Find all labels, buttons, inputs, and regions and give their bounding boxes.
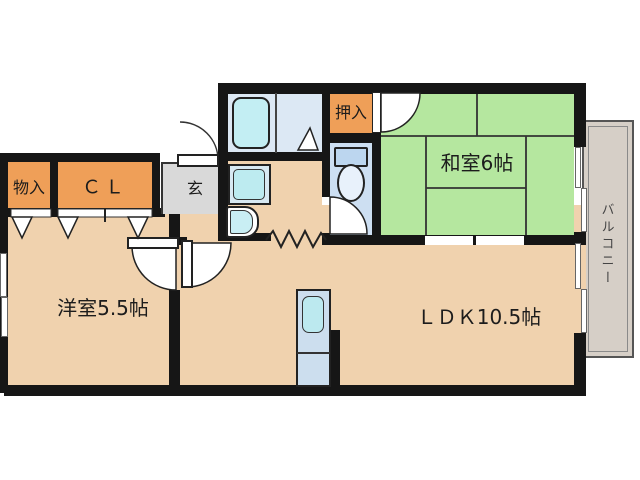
hall-door-arc [187, 243, 231, 287]
storage-fold-door-mark [12, 217, 32, 238]
bathroom-folding-door-mark [298, 128, 318, 150]
futon-closet-door-arc [381, 93, 420, 132]
futon-closet-label: 押入 [335, 105, 367, 121]
western-room-door-leaf [128, 238, 178, 248]
closet-fold-door-mark-1 [58, 217, 78, 238]
balcony-label: バルコニー [600, 203, 613, 288]
storage-label: 物入 [13, 180, 45, 196]
western-room-door-arc [132, 246, 176, 290]
floor-plan: 物入 ＣＬ 玄 押入 和室6帖 洋室5.5帖 ＬＤＫ10.5帖 バルコニー [0, 0, 640, 480]
entrance-label: 玄 [187, 181, 203, 197]
storage-door-track [11, 209, 51, 217]
entrance-door-leaf [178, 155, 218, 166]
hall-door-leaf [182, 241, 192, 287]
closet-fold-door-mark-2 [128, 217, 148, 238]
plan-linework [0, 0, 640, 480]
western-room-label: 洋室5.5帖 [57, 298, 149, 318]
accordion-door-zigzag [266, 231, 326, 247]
toilet-door-arc [330, 197, 367, 234]
ldk-label: ＬＤＫ10.5帖 [417, 307, 542, 327]
japanese-room-label: 和室6帖 [441, 153, 514, 173]
closet-label: ＣＬ [82, 179, 128, 198]
